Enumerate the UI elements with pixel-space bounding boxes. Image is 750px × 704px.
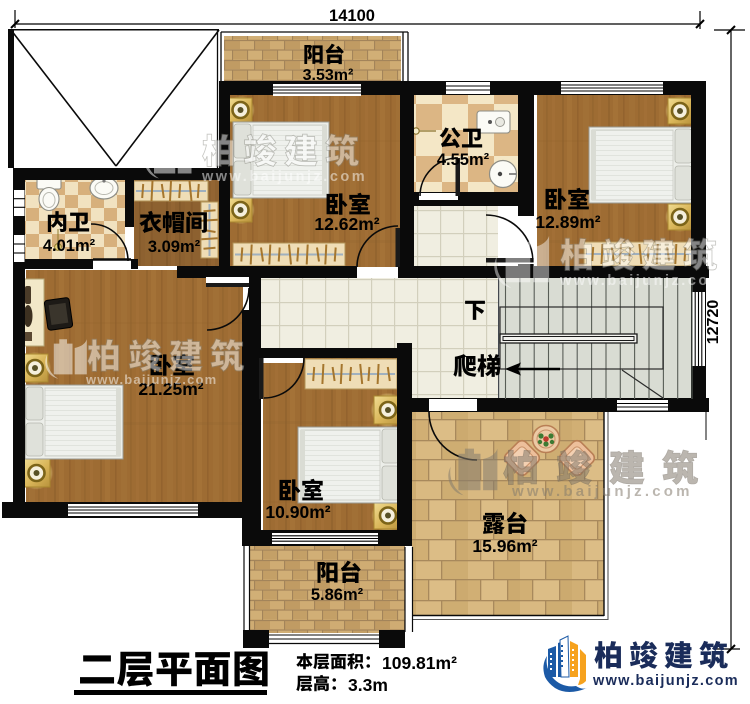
svg-text:3.53m²: 3.53m²: [303, 67, 354, 84]
svg-text:4.55m²: 4.55m²: [437, 151, 490, 169]
svg-text:12.62m²: 12.62m²: [314, 214, 379, 234]
svg-text:5.86m²: 5.86m²: [311, 586, 364, 604]
svg-text:4.01m²: 4.01m²: [43, 237, 96, 255]
svg-text:www.baijunjz.com: www.baijunjz.com: [85, 372, 217, 387]
svg-text:3.3m: 3.3m: [348, 675, 388, 695]
svg-text:10.90m²: 10.90m²: [265, 502, 330, 522]
svg-text:14100: 14100: [329, 7, 375, 25]
svg-text:12720: 12720: [705, 300, 722, 345]
svg-text:109.81m²: 109.81m²: [382, 653, 457, 673]
svg-text:www.baijunjz.com: www.baijunjz.com: [592, 673, 739, 689]
svg-text:3.09m²: 3.09m²: [148, 238, 201, 256]
svg-text:15.96m²: 15.96m²: [472, 536, 537, 556]
svg-text:www.baijunjz.com: www.baijunjz.com: [511, 483, 693, 500]
svg-text:12.89m²: 12.89m²: [535, 212, 600, 232]
svg-text:www.baijunjz.com: www.baijunjz.com: [559, 273, 725, 289]
svg-text:www.baijunjz.com: www.baijunjz.com: [201, 169, 367, 185]
